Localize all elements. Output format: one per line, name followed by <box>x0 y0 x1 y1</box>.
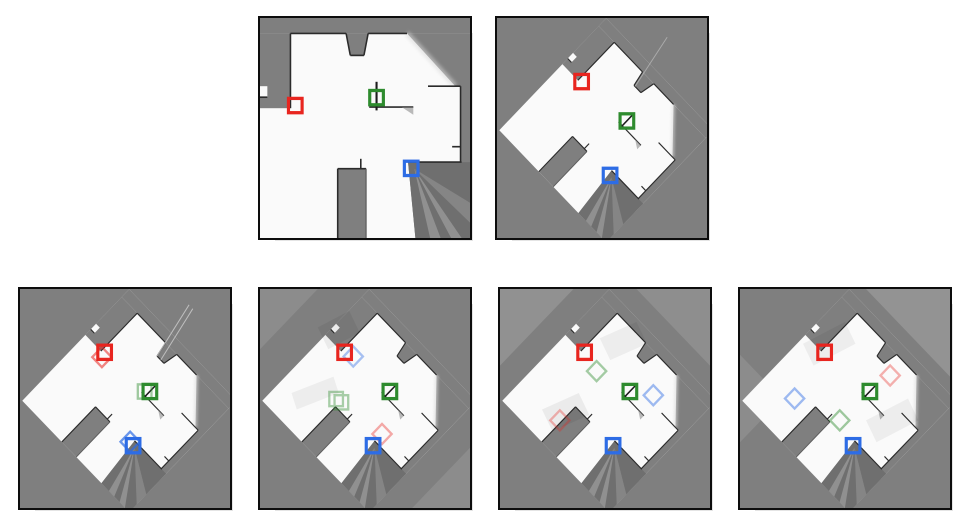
map-reference-rotated <box>495 16 709 240</box>
occupancy-grid-map <box>260 18 470 238</box>
merged-map-3 <box>498 287 712 510</box>
occupancy-grid-map <box>740 289 950 508</box>
merged-map-4 <box>738 287 952 510</box>
occupancy-grid-map <box>20 289 230 508</box>
map-tile <box>260 18 470 238</box>
occupancy-grid-map <box>500 289 710 508</box>
merged-maps-row <box>18 287 952 510</box>
occupancy-grid-map <box>497 18 707 238</box>
occupancy-grid-map <box>260 289 470 508</box>
map-reference-axis-aligned <box>258 16 472 240</box>
merged-map-2 <box>258 287 472 510</box>
merged-map-1 <box>18 287 232 510</box>
reference-maps-row <box>258 16 709 240</box>
